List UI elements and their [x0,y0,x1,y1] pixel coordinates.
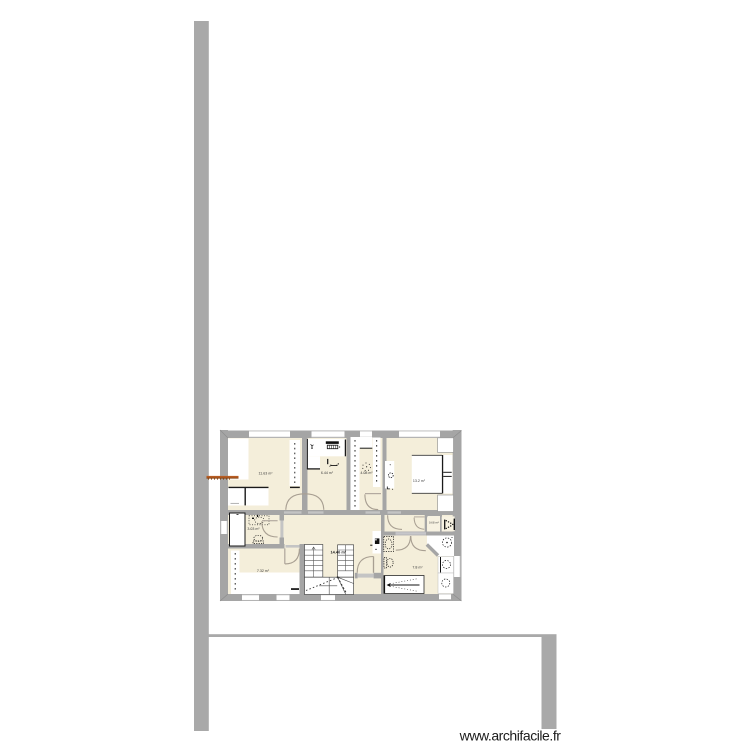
svg-text:3.03 m²: 3.03 m² [247,527,260,531]
svg-text:4.08 m²: 4.08 m² [360,471,373,475]
svg-text:11.63 m²: 11.63 m² [259,472,274,476]
svg-text:6.44 m²: 6.44 m² [321,471,334,475]
svg-text:7.8 m²: 7.8 m² [412,566,423,570]
svg-text:13.2 m²: 13.2 m² [413,479,426,483]
svg-text:7.32 m²: 7.32 m² [257,569,270,573]
svg-text:0.68 m²: 0.68 m² [429,520,439,524]
svg-text:14.46 m²: 14.46 m² [331,549,347,554]
svg-text:www.archifacile.fr: www.archifacile.fr [459,727,562,743]
